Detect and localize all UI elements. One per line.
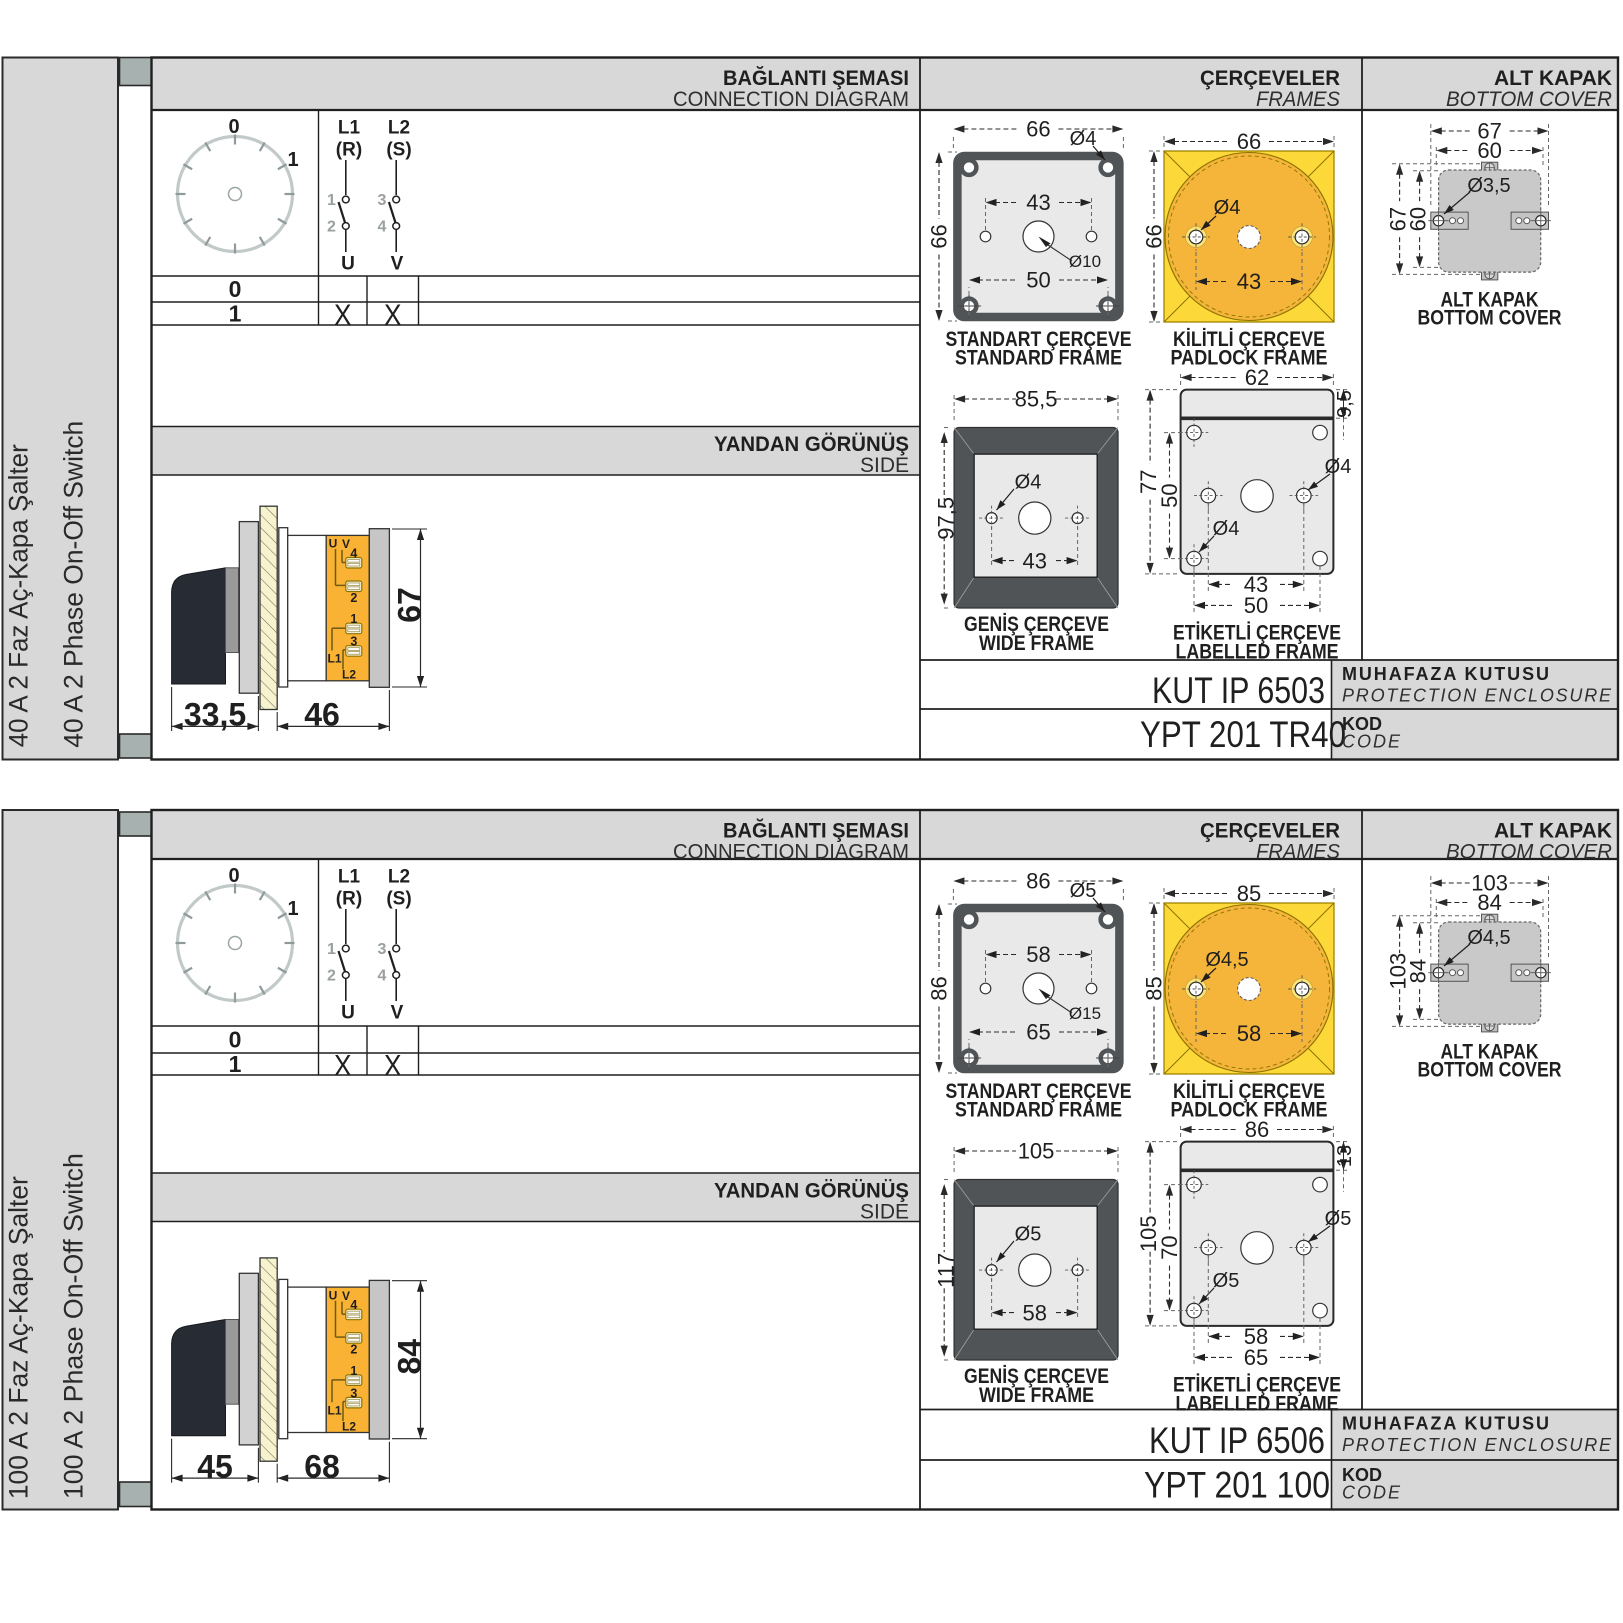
svg-text:43: 43 xyxy=(1237,269,1261,294)
svg-text:YANDAN GÖRÜNÜŞ: YANDAN GÖRÜNÜŞ xyxy=(714,1179,909,1202)
svg-text:4: 4 xyxy=(350,1298,357,1312)
svg-text:60: 60 xyxy=(1477,138,1501,163)
svg-text:(S): (S) xyxy=(386,889,411,910)
svg-text:L1: L1 xyxy=(338,867,361,888)
svg-text:YANDAN GÖRÜNÜŞ: YANDAN GÖRÜNÜŞ xyxy=(714,433,909,456)
svg-text:Ø4: Ø4 xyxy=(1213,518,1240,540)
svg-text:33,5: 33,5 xyxy=(184,697,246,733)
svg-text:Ø3,5: Ø3,5 xyxy=(1467,175,1510,197)
svg-text:66: 66 xyxy=(1026,117,1050,142)
svg-text:2: 2 xyxy=(327,219,336,236)
svg-text:(S): (S) xyxy=(386,140,411,161)
svg-text:Ø4: Ø4 xyxy=(1070,128,1097,150)
svg-text:58: 58 xyxy=(1023,1300,1047,1325)
svg-text:1: 1 xyxy=(229,1051,242,1077)
svg-text:ÇERÇEVELER: ÇERÇEVELER xyxy=(1200,819,1340,842)
svg-text:40 A 2 Faz Aç-Kapa Şalter: 40 A 2 Faz Aç-Kapa Şalter xyxy=(3,444,33,747)
svg-text:Ø10: Ø10 xyxy=(1069,252,1101,271)
svg-text:YPT 201 TR40: YPT 201 TR40 xyxy=(1140,714,1346,755)
svg-text:45: 45 xyxy=(197,1448,233,1484)
svg-text:WIDE FRAME: WIDE FRAME xyxy=(979,1384,1094,1407)
svg-text:68: 68 xyxy=(304,1448,340,1484)
svg-text:84: 84 xyxy=(1477,890,1501,915)
svg-text:Ø15: Ø15 xyxy=(1069,1004,1101,1023)
svg-text:LABELLED FRAME: LABELLED FRAME xyxy=(1176,640,1339,663)
svg-text:58: 58 xyxy=(1026,942,1050,967)
svg-text:9,5: 9,5 xyxy=(1334,390,1356,418)
svg-text:U: U xyxy=(341,1003,355,1024)
svg-text:(R): (R) xyxy=(336,889,362,910)
svg-text:1: 1 xyxy=(350,612,357,626)
svg-text:43: 43 xyxy=(1023,548,1047,573)
svg-text:WIDE FRAME: WIDE FRAME xyxy=(979,632,1094,655)
svg-text:1: 1 xyxy=(287,898,298,920)
svg-text:70: 70 xyxy=(1157,1235,1182,1259)
svg-text:1: 1 xyxy=(327,941,336,958)
svg-text:U: U xyxy=(329,1288,338,1302)
svg-text:97,5: 97,5 xyxy=(934,497,959,540)
svg-text:100 A 2 Phase On-Off Switch: 100 A 2 Phase On-Off Switch xyxy=(58,1153,88,1499)
svg-text:86: 86 xyxy=(1026,869,1050,894)
svg-text:Ø5: Ø5 xyxy=(1015,1224,1042,1246)
svg-text:1: 1 xyxy=(327,192,336,209)
svg-text:L1: L1 xyxy=(338,118,361,139)
svg-text:Ø4,5: Ø4,5 xyxy=(1467,927,1510,949)
svg-text:62: 62 xyxy=(1245,365,1269,390)
svg-text:13: 13 xyxy=(1334,1145,1356,1167)
svg-text:50: 50 xyxy=(1157,483,1182,507)
svg-text:U: U xyxy=(341,254,355,275)
svg-text:ALT KAPAK: ALT KAPAK xyxy=(1494,819,1612,842)
svg-text:46: 46 xyxy=(304,697,340,733)
svg-text:2: 2 xyxy=(327,968,336,985)
svg-text:40 A 2 Phase On-Off Switch: 40 A 2 Phase On-Off Switch xyxy=(58,421,88,748)
svg-text:85: 85 xyxy=(1237,881,1261,906)
svg-text:CONNECTION DIAGRAM: CONNECTION DIAGRAM xyxy=(673,88,909,111)
svg-text:86: 86 xyxy=(1245,1117,1269,1142)
svg-text:SIDE: SIDE xyxy=(860,1200,909,1223)
svg-text:L2: L2 xyxy=(342,1419,356,1433)
svg-text:Ø4: Ø4 xyxy=(1214,197,1241,219)
svg-text:84: 84 xyxy=(1405,959,1430,983)
svg-text:FRAMES: FRAMES xyxy=(1256,840,1340,863)
svg-text:V: V xyxy=(391,1003,404,1024)
svg-text:V: V xyxy=(391,254,404,275)
svg-text:BOTTOM COVER: BOTTOM COVER xyxy=(1418,306,1562,329)
svg-text:1: 1 xyxy=(229,301,242,327)
svg-text:BAĞLANTI ŞEMASI: BAĞLANTI ŞEMASI xyxy=(723,818,909,842)
svg-text:BOTTOM COVER: BOTTOM COVER xyxy=(1418,1058,1562,1081)
svg-text:3: 3 xyxy=(378,941,387,958)
svg-text:STANDARD FRAME: STANDARD FRAME xyxy=(955,346,1122,369)
svg-text:KUT IP 6503: KUT IP 6503 xyxy=(1152,670,1325,711)
svg-text:86: 86 xyxy=(927,976,952,1000)
svg-text:X: X xyxy=(384,299,402,332)
svg-text:66: 66 xyxy=(1142,224,1167,248)
svg-text:50: 50 xyxy=(1026,268,1050,293)
svg-text:84: 84 xyxy=(392,1339,428,1375)
svg-text:117: 117 xyxy=(934,1253,959,1288)
svg-text:50: 50 xyxy=(1244,593,1268,618)
svg-text:2: 2 xyxy=(350,591,357,605)
svg-text:Ø4,5: Ø4,5 xyxy=(1205,949,1248,971)
svg-text:0: 0 xyxy=(228,865,239,887)
svg-text:(R): (R) xyxy=(336,140,362,161)
svg-text:L2: L2 xyxy=(388,867,410,888)
svg-text:0: 0 xyxy=(229,1027,242,1053)
svg-text:PROTECTION ENCLOSURE: PROTECTION ENCLOSURE xyxy=(1342,685,1612,705)
svg-text:MUHAFAZA KUTUSU: MUHAFAZA KUTUSU xyxy=(1342,1413,1549,1433)
svg-text:SIDE: SIDE xyxy=(860,454,909,477)
svg-text:V: V xyxy=(342,1289,350,1303)
svg-text:0: 0 xyxy=(229,276,242,302)
svg-text:ÇERÇEVELER: ÇERÇEVELER xyxy=(1200,67,1340,90)
svg-text:Ø4: Ø4 xyxy=(1015,472,1042,494)
svg-text:X: X xyxy=(334,1050,352,1083)
svg-text:65: 65 xyxy=(1244,1345,1268,1370)
svg-text:4: 4 xyxy=(378,219,387,236)
svg-text:V: V xyxy=(342,537,350,551)
svg-text:Ø5: Ø5 xyxy=(1070,880,1097,902)
svg-text:85: 85 xyxy=(1142,976,1167,1000)
svg-text:KUT IP 6506: KUT IP 6506 xyxy=(1149,1420,1325,1461)
svg-text:YPT 201 100: YPT 201 100 xyxy=(1144,1465,1330,1506)
svg-text:65: 65 xyxy=(1026,1020,1050,1045)
svg-text:ALT KAPAK: ALT KAPAK xyxy=(1494,67,1612,90)
svg-text:4: 4 xyxy=(350,546,357,560)
svg-text:BAĞLANTI ŞEMASI: BAĞLANTI ŞEMASI xyxy=(723,66,909,90)
svg-text:100 A 2 Faz Aç-Kapa Şalter: 100 A 2 Faz Aç-Kapa Şalter xyxy=(3,1176,33,1499)
svg-text:4: 4 xyxy=(378,968,387,985)
svg-text:1: 1 xyxy=(287,149,298,171)
svg-text:3: 3 xyxy=(350,635,357,649)
svg-text:Ø5: Ø5 xyxy=(1213,1270,1240,1292)
svg-text:67: 67 xyxy=(392,587,428,623)
svg-text:58: 58 xyxy=(1237,1021,1261,1046)
svg-text:CONNECTION DIAGRAM: CONNECTION DIAGRAM xyxy=(673,840,909,863)
svg-text:43: 43 xyxy=(1026,190,1050,215)
svg-text:0: 0 xyxy=(228,116,239,138)
svg-text:66: 66 xyxy=(927,224,952,248)
svg-text:3: 3 xyxy=(378,192,387,209)
svg-text:STANDARD FRAME: STANDARD FRAME xyxy=(955,1098,1122,1121)
svg-text:66: 66 xyxy=(1237,129,1261,154)
svg-text:LABELLED FRAME: LABELLED FRAME xyxy=(1176,1392,1339,1415)
svg-text:FRAMES: FRAMES xyxy=(1256,88,1340,111)
svg-text:X: X xyxy=(334,299,352,332)
svg-text:L1: L1 xyxy=(327,1403,341,1417)
svg-text:60: 60 xyxy=(1405,207,1430,231)
svg-text:U: U xyxy=(329,537,338,551)
svg-text:L2: L2 xyxy=(388,118,410,139)
svg-text:L2: L2 xyxy=(342,668,356,682)
svg-text:BOTTOM COVER: BOTTOM COVER xyxy=(1446,88,1612,111)
svg-text:85,5: 85,5 xyxy=(1015,387,1058,412)
svg-text:2: 2 xyxy=(350,1343,357,1357)
svg-text:PROTECTION ENCLOSURE: PROTECTION ENCLOSURE xyxy=(1342,1435,1612,1455)
svg-text:1: 1 xyxy=(350,1364,357,1378)
svg-text:BOTTOM COVER: BOTTOM COVER xyxy=(1446,840,1612,863)
svg-text:105: 105 xyxy=(1018,1139,1055,1164)
svg-text:MUHAFAZA KUTUSU: MUHAFAZA KUTUSU xyxy=(1342,664,1549,684)
svg-text:L1: L1 xyxy=(327,652,341,666)
svg-text:3: 3 xyxy=(350,1386,357,1400)
svg-text:X: X xyxy=(384,1050,402,1083)
